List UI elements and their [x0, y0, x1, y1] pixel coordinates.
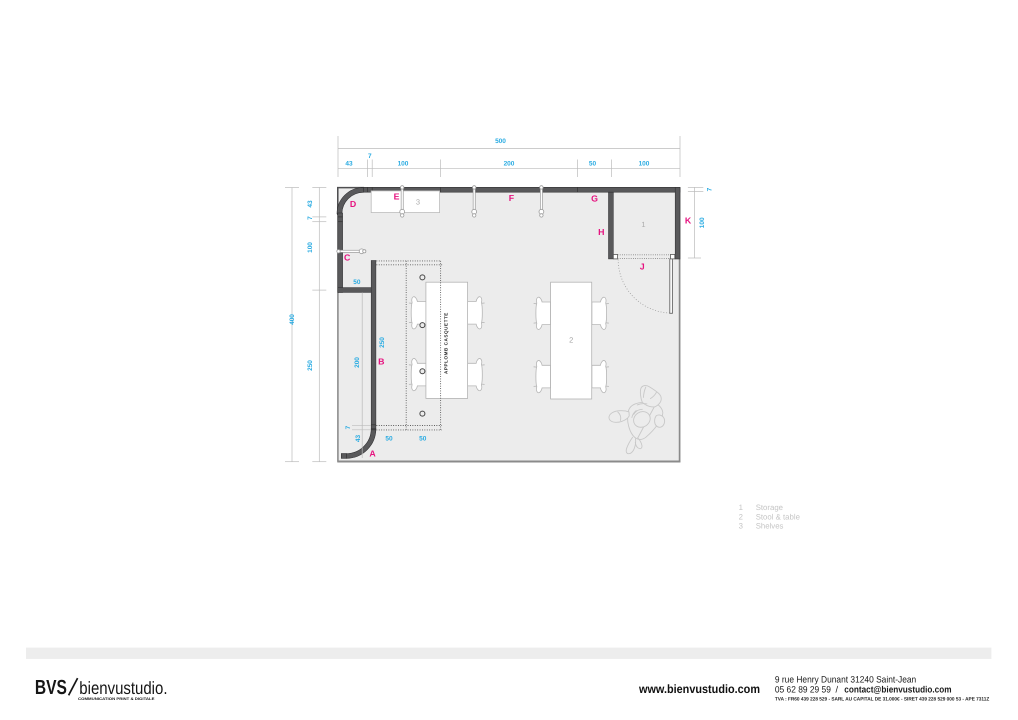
svg-text:COMMUNICATION PRINT & DIGITALE: COMMUNICATION PRINT & DIGITALE: [78, 697, 155, 701]
svg-text:3: 3: [739, 522, 743, 531]
svg-text:H: H: [598, 227, 604, 237]
svg-text:G: G: [591, 194, 598, 204]
svg-text:50: 50: [353, 279, 361, 286]
svg-text:500: 500: [495, 138, 506, 145]
svg-text:C: C: [344, 253, 351, 263]
svg-text:50: 50: [589, 160, 597, 167]
svg-text:05 62 89 29 59: 05 62 89 29 59: [775, 684, 831, 694]
svg-text:200: 200: [504, 160, 515, 167]
svg-text:Stool & table: Stool & table: [756, 512, 800, 521]
svg-text:APPLOMB CASQUETTE: APPLOMB CASQUETTE: [443, 312, 448, 374]
svg-text:3: 3: [416, 198, 420, 207]
svg-text:7: 7: [345, 425, 352, 429]
svg-text:250: 250: [379, 337, 386, 348]
svg-text:E: E: [394, 192, 400, 202]
svg-text:Storage: Storage: [756, 503, 783, 512]
svg-text:1: 1: [739, 503, 743, 512]
svg-text:100: 100: [307, 242, 314, 253]
svg-text:100: 100: [699, 217, 706, 228]
svg-text:/: /: [836, 684, 839, 694]
svg-text:BVS: BVS: [35, 677, 67, 699]
svg-text:contact@bienvustudio.com: contact@bienvustudio.com: [844, 684, 951, 694]
svg-text:7: 7: [707, 187, 714, 191]
svg-text:D: D: [350, 199, 356, 209]
svg-text:www.bienvustudio.com: www.bienvustudio.com: [638, 682, 760, 696]
svg-text:43: 43: [355, 435, 362, 443]
svg-text:A: A: [369, 449, 376, 459]
svg-text:7: 7: [307, 216, 314, 220]
svg-text:43: 43: [307, 200, 314, 208]
svg-text:100: 100: [398, 160, 409, 167]
svg-text:200: 200: [354, 357, 361, 368]
svg-text:J: J: [640, 262, 645, 272]
svg-text:9 rue Henry Dunant 31240 Saint: 9 rue Henry Dunant 31240 Saint-Jean: [775, 675, 916, 685]
svg-text:1: 1: [641, 220, 645, 229]
svg-text:B: B: [378, 357, 384, 367]
svg-text:43: 43: [345, 160, 353, 167]
svg-text:400: 400: [289, 314, 296, 325]
svg-text:100: 100: [639, 160, 650, 167]
svg-text:TVA : FR60 439 228 529 - SARL: TVA : FR60 439 228 529 - SARL AU CAPITAL…: [775, 697, 989, 703]
svg-text:F: F: [509, 193, 515, 203]
svg-text:50: 50: [385, 436, 393, 443]
svg-text:K: K: [685, 216, 692, 226]
svg-text:2: 2: [569, 336, 573, 345]
svg-text:7: 7: [368, 153, 372, 160]
svg-text:2: 2: [739, 512, 743, 521]
svg-text:250: 250: [307, 360, 314, 371]
svg-text:Shelves: Shelves: [756, 522, 784, 531]
svg-text:50: 50: [419, 436, 427, 443]
svg-text:bienvustudio.: bienvustudio.: [79, 678, 167, 698]
